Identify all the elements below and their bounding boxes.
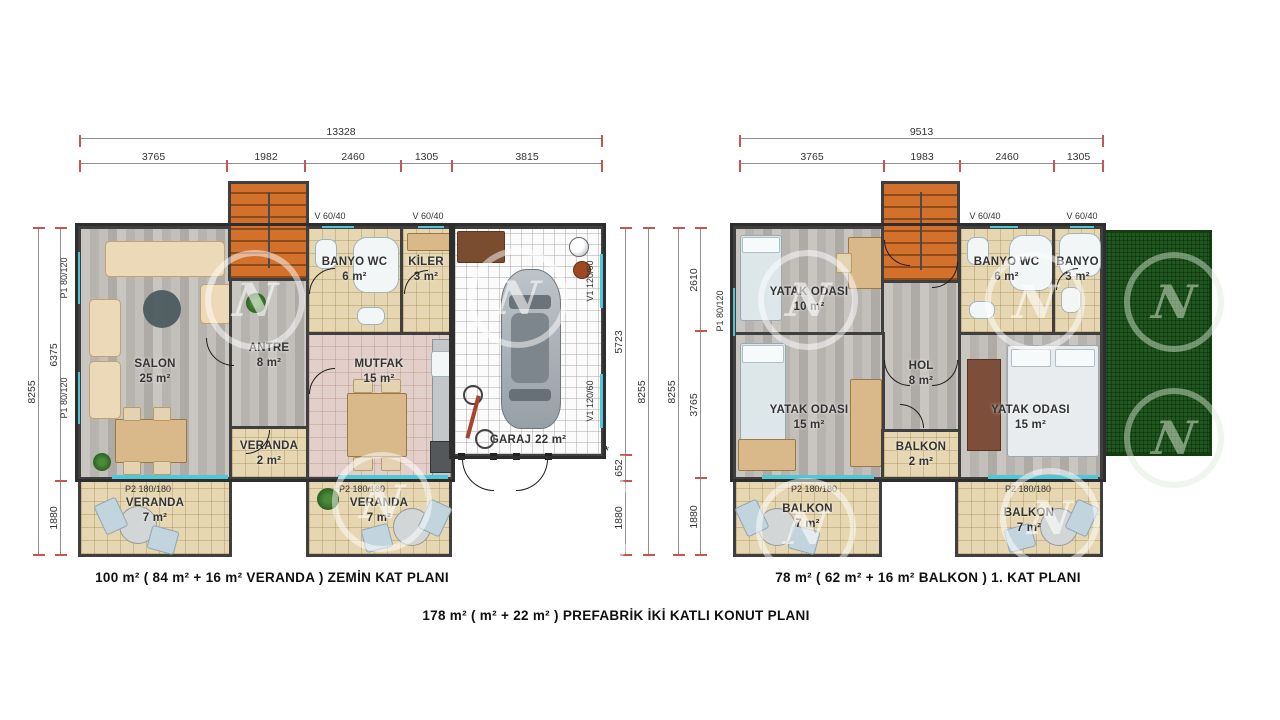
bicycle-wheel [463, 385, 483, 405]
sofa [105, 241, 225, 277]
pillow [742, 345, 784, 363]
asterisk-mark: * [604, 443, 609, 458]
window-label-v: V 60/40 [314, 211, 345, 221]
chair [381, 457, 401, 471]
window-p2 [338, 475, 448, 479]
dim-segment: 1880 [700, 478, 701, 555]
dining-table [115, 419, 187, 463]
room-label-yatak-15-right: YATAK ODASI15 m² [961, 403, 1100, 433]
room-label-garaj: GARAJ22 m² [455, 433, 601, 448]
window-label-p1: P1 80/120 [59, 257, 69, 298]
dim-segment: 1982 [227, 163, 305, 164]
window-v [1070, 224, 1094, 228]
dim-label: 1983 [907, 151, 936, 163]
car-rear-glass [509, 389, 551, 401]
window-label-p2: P2 180/180 [339, 484, 385, 494]
dim-label: 9513 [907, 126, 936, 138]
sink [969, 301, 995, 319]
dim-label: 1305 [412, 151, 441, 163]
dim-label: 8255 [26, 377, 38, 406]
dim-label: 8255 [636, 377, 648, 406]
armchair [200, 284, 232, 324]
window-label-v: V 60/40 [412, 211, 443, 221]
sofa [89, 299, 121, 357]
dim-label: 5723 [613, 327, 625, 356]
stove [430, 441, 452, 473]
dim-label: 1880 [613, 503, 625, 532]
room-garaj: GARAJ22 m² [452, 226, 604, 457]
sink [357, 307, 385, 325]
dim-segment: 1880 [60, 481, 61, 555]
window-p2 [762, 475, 874, 479]
desk [738, 439, 796, 471]
room-balkon-small: BALKON2 m² [881, 429, 961, 480]
gate-post [513, 453, 520, 460]
plant [246, 293, 266, 313]
window-label-p1: P1 80/120 [715, 290, 725, 331]
dim-total-height-ground: 8255 [38, 228, 39, 555]
chair [123, 461, 141, 475]
caption-overall: 178 m² ( m² + 22 m² ) PREFABRİK İKİ KATL… [422, 608, 809, 623]
toilet [1061, 287, 1081, 313]
room-label-yatak-10: YATAK ODASI10 m² [736, 285, 882, 315]
caption-ground-floor: 100 m² ( 84 m² + 16 m² VERANDA ) ZEMİN K… [95, 570, 449, 585]
gate-post [458, 453, 465, 460]
dim-label: 2460 [992, 151, 1021, 163]
room-label-antre: ANTRE8 m² [232, 341, 306, 371]
room-label-salon: SALON25 m² [81, 357, 229, 387]
window-p1 [76, 252, 80, 304]
window-label-p2: P2 180/180 [791, 484, 837, 494]
chair [836, 253, 852, 273]
dim-segment: 2460 [305, 163, 401, 164]
dim-segment: 652 [625, 455, 626, 481]
garage-gate-arc [462, 459, 494, 491]
garage-gate-arc [516, 459, 548, 491]
staircase-ground [228, 181, 309, 281]
window-label-v: V 60/40 [969, 211, 1000, 221]
soccer-ball [569, 237, 589, 257]
room-label-balkon-right: BALKON7 m² [958, 506, 1100, 536]
window-v [418, 224, 444, 228]
dim-label: 652 [613, 456, 625, 480]
dim-label: 2610 [688, 265, 700, 294]
dim-segment: 3765 [700, 331, 701, 478]
room-banyo-wc-first: BANYO WC6 m² [958, 226, 1055, 335]
window-p2 [112, 475, 228, 479]
dim-total-width-ground: 13328 [80, 138, 602, 139]
dim-label: 3815 [512, 151, 541, 163]
dim-segment: 2610 [700, 228, 701, 331]
window-label-p2: P2 180/180 [125, 484, 171, 494]
room-yatak-10: YATAK ODASI10 m² [733, 226, 885, 335]
dim-label: 6375 [48, 340, 60, 369]
kitchen-table [347, 393, 407, 457]
room-label-veranda-small: VERANDA2 m² [232, 439, 306, 469]
dim-label: 1305 [1064, 151, 1093, 163]
window-label-p1: P1 80/120 [59, 377, 69, 418]
dim-label: 8255 [666, 377, 678, 406]
chair [123, 407, 141, 421]
floor-plan-sheet: 13328 3765 1982 2460 1305 3815 8255 6375… [0, 0, 1280, 720]
dim-segment: 1880 [625, 481, 626, 555]
room-salon: SALON25 m² [78, 226, 232, 480]
plant [93, 453, 111, 471]
room-label-balkon-small: BALKON2 m² [884, 440, 958, 470]
dim-segment: 5723 [625, 228, 626, 455]
car-windshield [509, 295, 551, 309]
window-p2 [988, 475, 1098, 479]
dim-label: 1982 [251, 151, 280, 163]
window-p1 [76, 372, 80, 424]
window-label-v: V 60/40 [1066, 211, 1097, 221]
dim-segment: 1983 [884, 163, 960, 164]
dim-segment: 1305 [1054, 163, 1103, 164]
chair [153, 461, 171, 475]
garage-table [457, 231, 505, 263]
dim-label: 2460 [338, 151, 367, 163]
patio-chair [146, 525, 179, 555]
dim-label: 1880 [48, 503, 60, 532]
dim-segment: 3815 [452, 163, 602, 164]
patio-chair [360, 523, 393, 553]
rug [143, 290, 181, 328]
garage-roof-green [1100, 230, 1212, 456]
room-label-balkon-left: BALKON7 m² [736, 502, 879, 532]
gate-post [490, 453, 497, 460]
pillow [1055, 349, 1095, 367]
dim-segment: 1305 [401, 163, 452, 164]
window-label-p2: P2 180/180 [1005, 484, 1051, 494]
dim-label: 3765 [139, 151, 168, 163]
dim-segment: 2460 [960, 163, 1054, 164]
window-label-v1: V1 120/60 [585, 260, 595, 301]
room-label-veranda-right: VERANDA7 m² [309, 496, 449, 526]
car-roof [511, 313, 549, 383]
window-v [990, 224, 1018, 228]
room-yatak-15-right: YATAK ODASI15 m² [958, 332, 1103, 480]
dim-label: 3765 [688, 390, 700, 419]
room-label-veranda-left: VERANDA7 m² [81, 496, 229, 526]
dim-total-height-first: 8255 [678, 228, 679, 555]
dim-segment: 3765 [80, 163, 227, 164]
room-label-yatak-15-left: YATAK ODASI15 m² [736, 403, 882, 433]
dim-segment: 3765 [740, 163, 884, 164]
shelf [407, 233, 451, 251]
room-label-banyo-wc-first: BANYO WC6 m² [961, 255, 1052, 285]
gate-post [545, 453, 552, 460]
dim-total-width-first: 9513 [740, 138, 1103, 139]
window-v1 [600, 374, 604, 428]
pillow [742, 237, 780, 253]
dim-outer-height: 8255 [648, 228, 649, 555]
caption-first-floor: 78 m² ( 62 m² + 16 m² BALKON ) 1. KAT PL… [775, 570, 1081, 585]
dim-label: 13328 [323, 126, 358, 138]
chair [153, 407, 171, 421]
room-yatak-15-left: YATAK ODASI15 m² [733, 332, 885, 480]
window-v [322, 224, 354, 228]
dim-label: 3765 [797, 151, 826, 163]
window-v1 [600, 254, 604, 308]
chair [353, 457, 373, 471]
pillow [1011, 349, 1051, 367]
window-p1 [731, 288, 735, 336]
room-mutfak: MUTFAK15 m² [306, 332, 452, 480]
window-label-v1: V1 120/60 [585, 380, 595, 421]
desk [848, 237, 884, 289]
dim-label: 1880 [688, 502, 700, 531]
